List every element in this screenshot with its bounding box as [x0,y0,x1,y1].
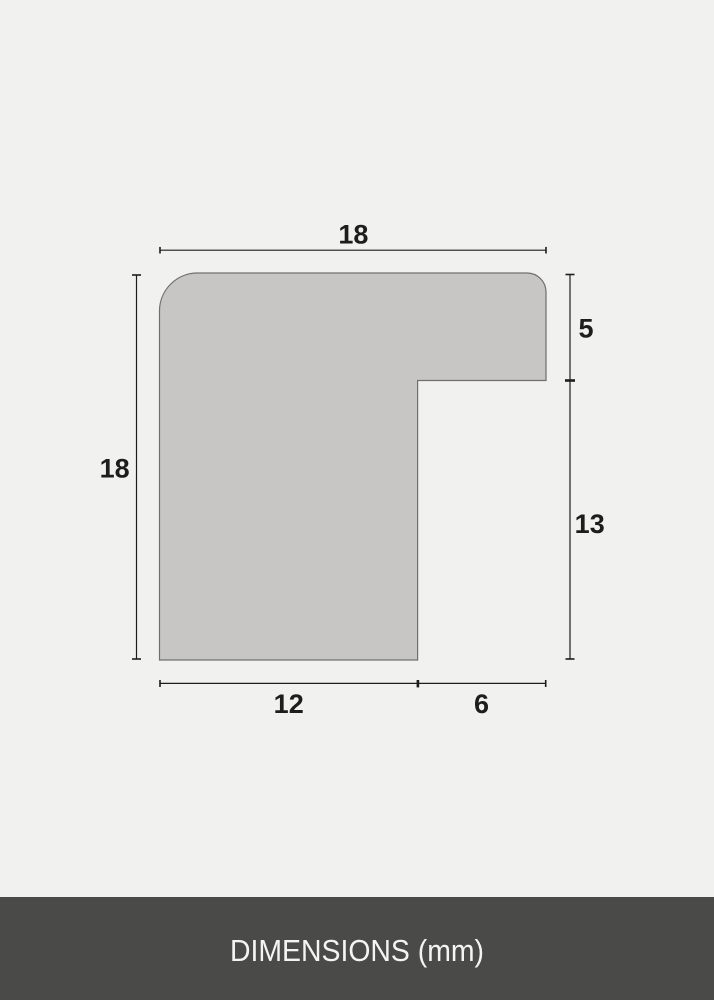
svg-text:6: 6 [474,689,489,719]
svg-text:13: 13 [575,509,605,539]
svg-text:DIMENSIONS (mm): DIMENSIONS (mm) [230,933,484,968]
svg-text:5: 5 [578,313,593,343]
svg-text:12: 12 [274,689,304,719]
svg-text:18: 18 [338,219,368,249]
svg-text:18: 18 [100,453,130,483]
